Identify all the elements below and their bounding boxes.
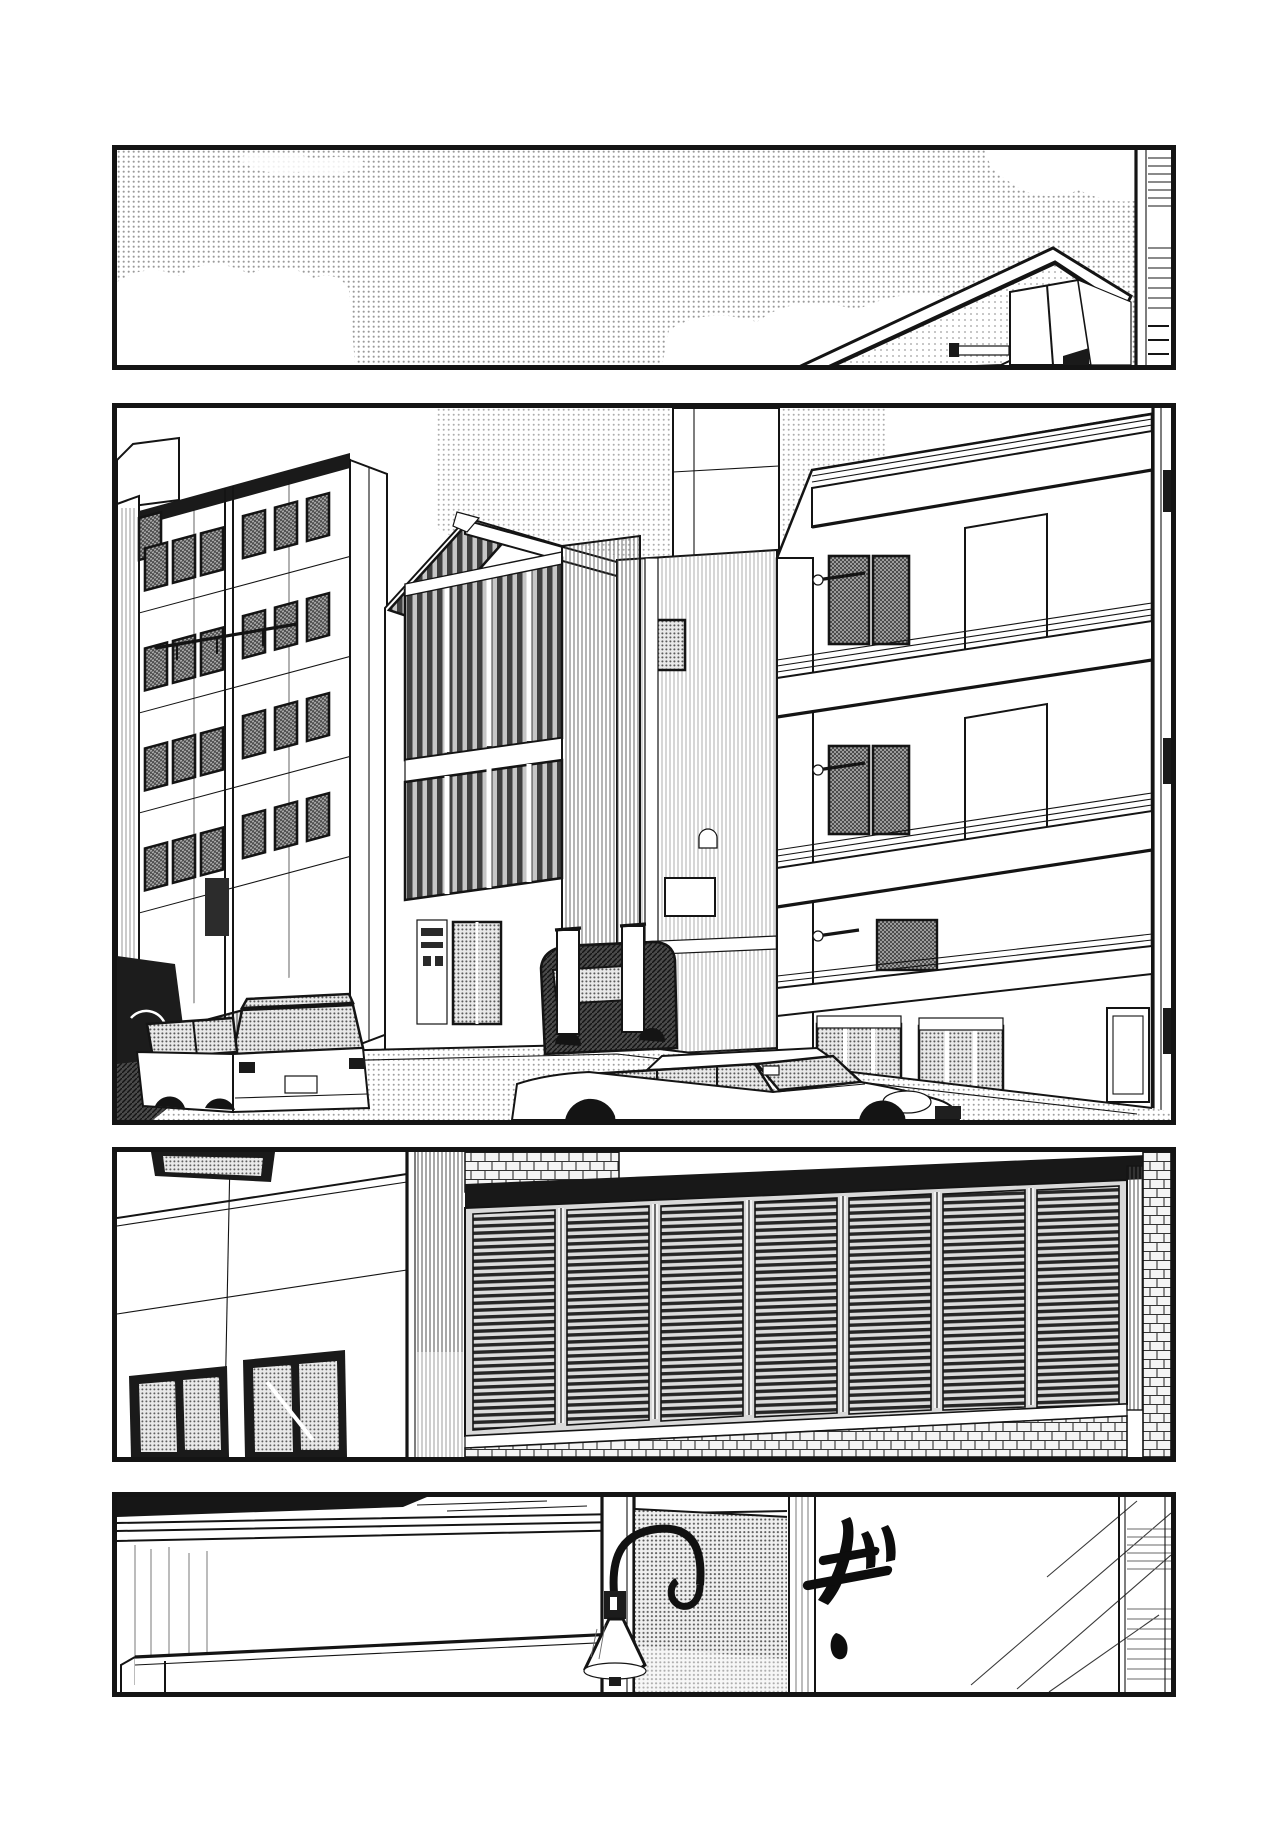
standpipe bbox=[645, 558, 658, 946]
grille bbox=[935, 1106, 961, 1119]
toned-partition bbox=[635, 1509, 789, 1692]
divider-speed-lines bbox=[787, 1497, 819, 1692]
brick-column bbox=[1143, 1152, 1171, 1457]
lamp-rim bbox=[584, 1663, 646, 1679]
lower-glass-band bbox=[405, 760, 562, 900]
panel-building-closeup bbox=[112, 1147, 1176, 1462]
junction-box bbox=[205, 878, 229, 936]
panel-sky bbox=[112, 145, 1176, 370]
side-mirror bbox=[763, 1066, 779, 1075]
louver-facade bbox=[465, 1152, 1171, 1457]
rear-window bbox=[233, 1005, 363, 1054]
apartment-building bbox=[777, 413, 1152, 1113]
upper-glass-band bbox=[405, 552, 562, 760]
panel-street bbox=[112, 403, 1176, 1125]
right-edge-building bbox=[1135, 150, 1171, 365]
lower-window-1 bbox=[129, 1366, 229, 1457]
hooded-lamp bbox=[699, 829, 717, 848]
license-plate bbox=[285, 1076, 317, 1093]
louver-bays bbox=[473, 1186, 1119, 1430]
manga-page bbox=[0, 0, 1284, 1843]
ground-floor bbox=[417, 920, 501, 1024]
panel-interior bbox=[112, 1492, 1176, 1697]
small-signboard bbox=[665, 878, 715, 916]
right-edge-building bbox=[1152, 408, 1171, 1120]
corner-pilaster bbox=[777, 558, 813, 1113]
lamp-bulb bbox=[609, 1677, 621, 1686]
lower-window-2 bbox=[243, 1350, 347, 1457]
